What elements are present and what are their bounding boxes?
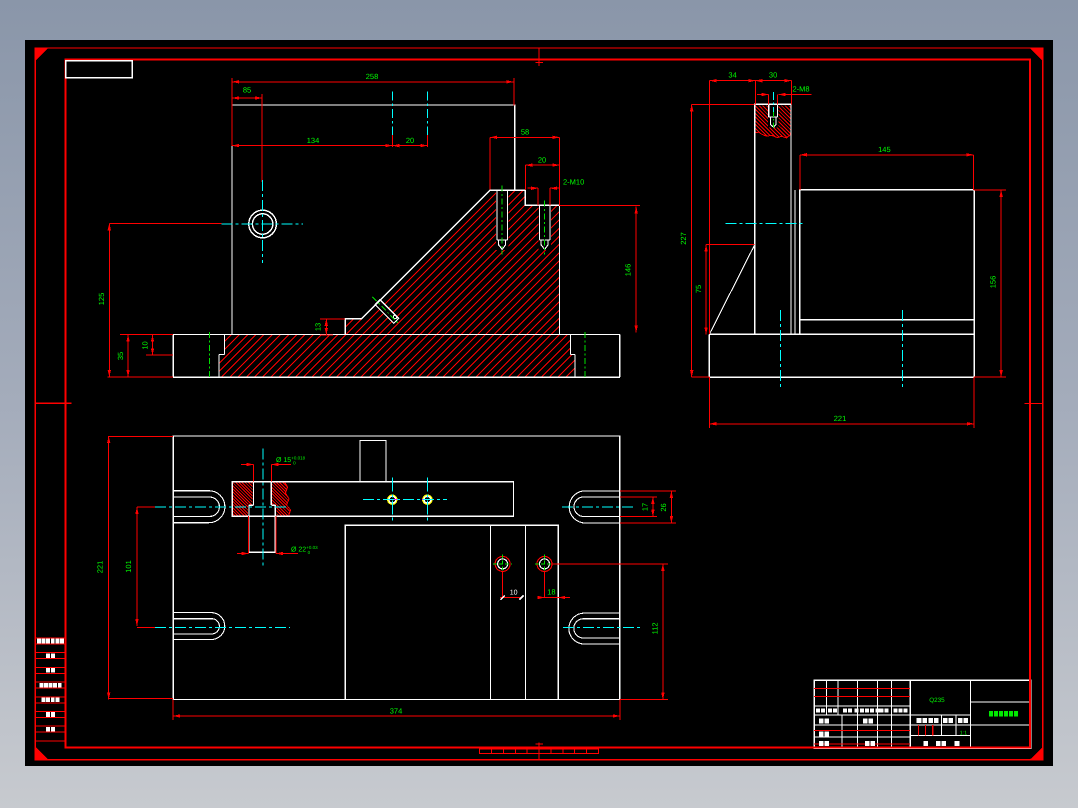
svg-text:35: 35 [116, 352, 125, 360]
svg-text:101: 101 [124, 560, 133, 573]
svg-text:10: 10 [141, 341, 150, 349]
svg-text:18: 18 [547, 587, 555, 596]
svg-text:221: 221 [834, 414, 847, 423]
svg-text:2-M8: 2-M8 [793, 85, 810, 94]
svg-text:17: 17 [641, 503, 650, 511]
svg-text:258: 258 [366, 72, 379, 81]
svg-text:145: 145 [878, 145, 891, 154]
svg-text:13: 13 [314, 323, 323, 331]
svg-text:2-M10: 2-M10 [563, 178, 584, 187]
svg-text:221: 221 [96, 561, 105, 574]
svg-text:34: 34 [728, 71, 736, 80]
svg-text:58: 58 [521, 128, 529, 137]
svg-text:10: 10 [510, 589, 518, 596]
svg-text:227: 227 [679, 232, 688, 245]
svg-text:26: 26 [659, 503, 668, 511]
svg-text:156: 156 [989, 276, 998, 289]
svg-text:146: 146 [624, 264, 633, 277]
svg-text:125: 125 [97, 293, 106, 306]
svg-text:20: 20 [538, 156, 546, 165]
svg-text:374: 374 [390, 707, 403, 716]
svg-text:85: 85 [243, 86, 251, 95]
svg-text:112: 112 [651, 622, 660, 634]
svg-text:30: 30 [769, 71, 777, 80]
svg-text:20: 20 [406, 136, 414, 145]
svg-text:Q235: Q235 [929, 697, 945, 704]
svg-text:75: 75 [694, 285, 703, 293]
svg-text:1:1: 1:1 [960, 731, 968, 737]
svg-text:134: 134 [307, 136, 320, 145]
